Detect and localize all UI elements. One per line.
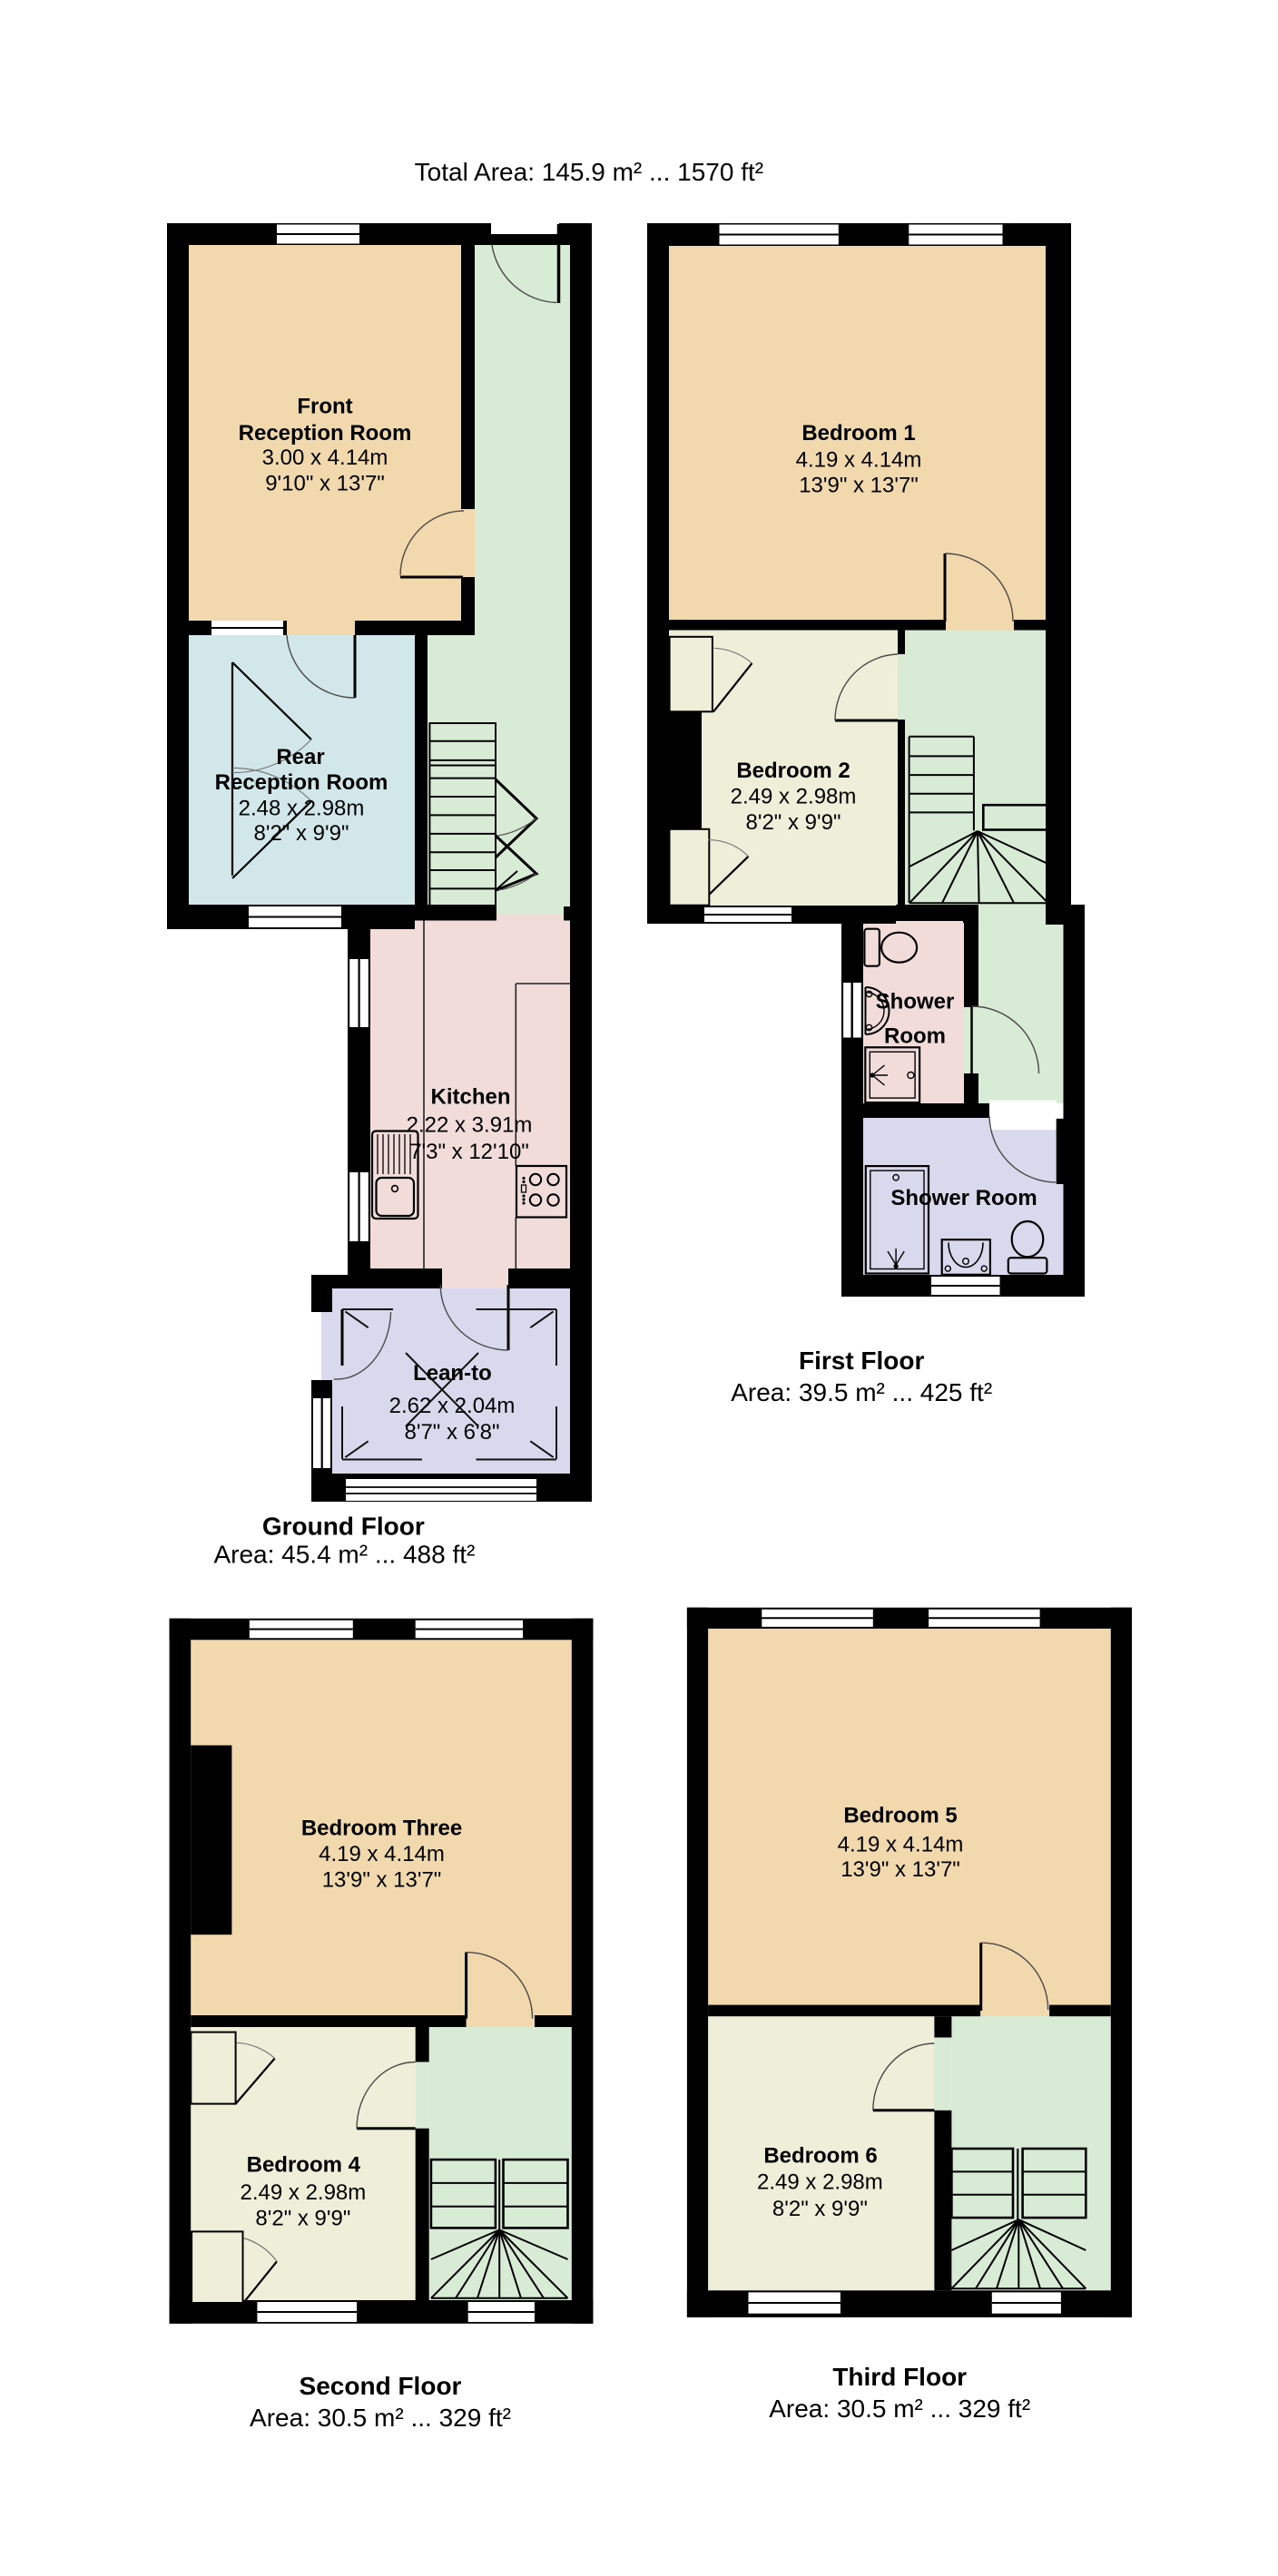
- svg-text:Bedroom 6: Bedroom 6: [763, 2144, 877, 2169]
- svg-text:13'9" x 13'7": 13'9" x 13'7": [322, 1867, 442, 1892]
- svg-text:Area: 45.4 m² ... 488 ft²: Area: 45.4 m² ... 488 ft²: [213, 1540, 475, 1568]
- svg-text:8'2" x 9'9": 8'2" x 9'9": [772, 2197, 868, 2221]
- svg-text:8'2" x 9'9": 8'2" x 9'9": [254, 821, 349, 846]
- svg-text:Third Floor: Third Floor: [832, 2363, 967, 2391]
- svg-text:Front: Front: [297, 395, 352, 419]
- svg-text:Area: 39.5 m² ... 425 ft²: Area: 39.5 m² ... 425 ft²: [731, 1378, 992, 1406]
- svg-text:Lean-to: Lean-to: [413, 1361, 492, 1386]
- svg-text:Shower: Shower: [876, 990, 955, 1014]
- svg-text:8'2" x 9'9": 8'2" x 9'9": [255, 2206, 350, 2230]
- svg-text:Bedroom 2: Bedroom 2: [736, 759, 850, 783]
- svg-text:First Floor: First Floor: [799, 1347, 925, 1375]
- svg-text:Area: 30.5 m² ... 329 ft²: Area: 30.5 m² ... 329 ft²: [769, 2395, 1030, 2423]
- svg-text:Total Area: 145.9 m² ... 1570: Total Area: 145.9 m² ... 1570 ft²: [415, 158, 763, 186]
- svg-text:Rear: Rear: [276, 745, 324, 769]
- svg-text:Bedroom 1: Bedroom 1: [801, 421, 915, 446]
- svg-text:8'2" x 9'9": 8'2" x 9'9": [746, 810, 841, 835]
- svg-text:8'7" x 6'8": 8'7" x 6'8": [405, 1420, 500, 1445]
- svg-text:3.00 x 4.14m: 3.00 x 4.14m: [262, 446, 388, 470]
- svg-text:2.49 x 2.98m: 2.49 x 2.98m: [731, 784, 857, 808]
- svg-text:Room: Room: [884, 1024, 946, 1049]
- svg-text:13'9" x 13'7": 13'9" x 13'7": [799, 474, 919, 498]
- svg-text:Bedroom 5: Bedroom 5: [843, 1804, 957, 1828]
- svg-text:13'9" x 13'7": 13'9" x 13'7": [841, 1857, 960, 1882]
- svg-text:2.49 x 2.98m: 2.49 x 2.98m: [757, 2170, 883, 2195]
- svg-text:Ground Floor: Ground Floor: [262, 1512, 425, 1540]
- svg-text:Reception Room: Reception Room: [239, 421, 412, 446]
- svg-text:Kitchen: Kitchen: [430, 1085, 510, 1110]
- svg-text:7'3" x 12'10": 7'3" x 12'10": [409, 1140, 529, 1164]
- svg-text:Bedroom 4: Bedroom 4: [247, 2153, 361, 2178]
- svg-text:Area: 30.5 m² ... 329 ft²: Area: 30.5 m² ... 329 ft²: [250, 2404, 511, 2432]
- svg-text:2.62 x 2.04m: 2.62 x 2.04m: [389, 1394, 516, 1418]
- svg-text:2.22 x 3.91m: 2.22 x 3.91m: [407, 1113, 533, 1138]
- svg-text:2.48 x 2.98m: 2.48 x 2.98m: [239, 797, 365, 821]
- svg-text:4.19 x 4.14m: 4.19 x 4.14m: [796, 448, 922, 473]
- svg-text:Reception Room: Reception Room: [215, 770, 388, 795]
- svg-text:4.19 x 4.14m: 4.19 x 4.14m: [319, 1842, 445, 1866]
- svg-text:9'10" x 13'7": 9'10" x 13'7": [265, 472, 385, 496]
- svg-text:4.19 x 4.14m: 4.19 x 4.14m: [838, 1832, 964, 1856]
- svg-text:Shower Room: Shower Room: [890, 1186, 1037, 1210]
- svg-text:Second Floor: Second Floor: [300, 2372, 462, 2400]
- svg-text:2.49 x 2.98m: 2.49 x 2.98m: [241, 2180, 367, 2205]
- svg-text:Bedroom Three: Bedroom Three: [301, 1817, 462, 1841]
